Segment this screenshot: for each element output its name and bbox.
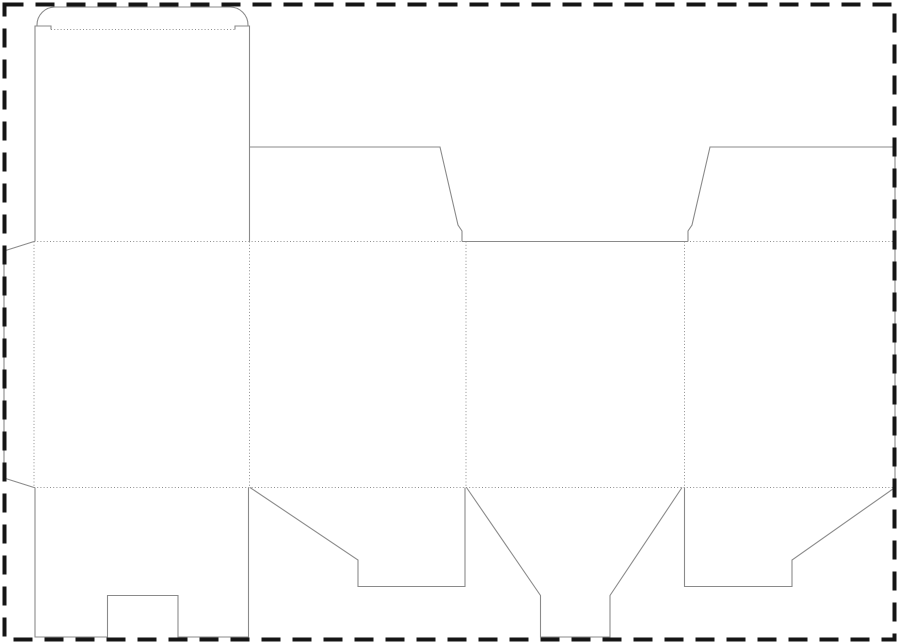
bottom-side-flap-right-outline [685,488,896,587]
carton-dieline-drawing [0,0,900,644]
page-border-dashed [5,5,895,640]
bottom-main-flap-notched-outline [35,488,249,638]
bottom-tongue-flap-outline [467,488,683,638]
bottom-side-flap-left-outline [250,488,465,587]
lid-right-edge-cut [235,26,250,242]
top-dust-flap-right-outline [688,147,895,488]
glue-flap-outline [4,242,34,488]
carton-dieline-page [0,0,900,644]
tuck-flap-outline [37,7,248,26]
top-dust-flap-left-outline [250,147,463,242]
lid-left-edge-cut [35,26,51,242]
